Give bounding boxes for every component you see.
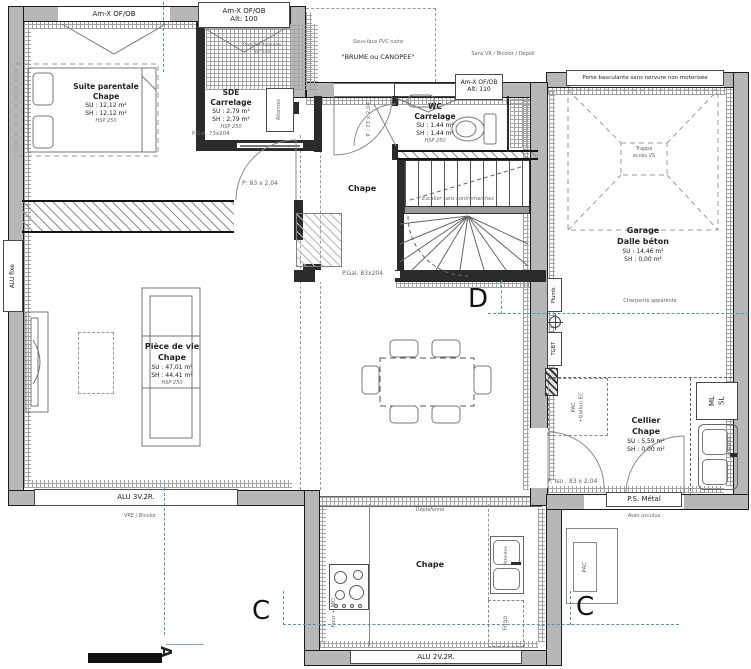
kitchen-sink: Attentes [490, 536, 524, 594]
section-line-c [283, 624, 679, 625]
room-sh: SH : 44,41 m² [122, 372, 222, 380]
window-alt-text: Alt: 100 [230, 15, 257, 23]
tv-unit-icon [26, 312, 48, 412]
sink-faucet [511, 562, 521, 565]
room-hsp: HSP 250 [406, 138, 464, 145]
room-finish: Carrelage [406, 112, 464, 122]
garage-door-label: Porte basculante sans nervure non motori… [566, 70, 724, 86]
room-label-cellier: Cellier Chape SU : 5,59 m² SH : 0,00 m² [610, 416, 682, 454]
room-name: Cellier [610, 416, 682, 427]
porch-note: Sous-face PVC noire [326, 40, 430, 46]
attentes-text: Attentes [277, 99, 283, 120]
window-label-alu-fixe: ALU fixe [3, 240, 23, 312]
scale-bar [88, 653, 162, 663]
room-name: Suite parentale [56, 82, 156, 92]
shower-label: Douche italienne 90*140 [210, 43, 314, 57]
room-su: SU : 2,79 m² [198, 108, 264, 116]
trappe-label: Trappe accès VS [621, 146, 667, 160]
sink-basin [702, 459, 728, 485]
pac-closet: PAC +ballon EC [548, 378, 608, 436]
room-su: SU : 14,46 m² [598, 248, 688, 256]
floor-plan: Sous-face PVC noire "BRUME ou CANOPEE" S… [0, 0, 751, 669]
room-finish: Chape [610, 427, 682, 438]
ml-text: ML [708, 396, 717, 406]
door-label-ps-metal: P.S. Métal [606, 492, 682, 507]
room-label-wc: WC Carrelage SU : 1,44 m² SH : 1,44 m² H… [406, 102, 464, 145]
room-name: Garage [598, 226, 688, 237]
room-sh: SH : 12,12 m² [56, 110, 156, 118]
section-marker-c: C [252, 598, 270, 624]
window-label-suite: Am-X OF/OB [58, 7, 170, 21]
room-label-suite: Suite parentale Chape SU : 12,12 m² SH :… [56, 82, 156, 125]
room-su: SU : 5,59 m² [610, 438, 682, 446]
room-label-garage: Garage Dalle béton SU : 14,46 m² SH : 0,… [598, 226, 688, 264]
vanity-knob [294, 102, 299, 114]
section-marker-d: D [468, 286, 488, 312]
pac-closet-label: PAC +ballon EC [571, 392, 586, 422]
sl-text: SL [717, 396, 726, 406]
section-line-a [164, 488, 165, 635]
sink-basin [702, 429, 728, 455]
section-line-c-tick [283, 591, 284, 625]
washer-dryer-label: ML SL [708, 396, 727, 406]
room-name: Pièce de vie [122, 342, 222, 353]
room-finish: Dalle béton [598, 237, 688, 248]
four-text: Four + MO [331, 598, 337, 627]
pac-inner: PAC [573, 542, 597, 592]
attentes-text: Attentes [504, 546, 509, 565]
wc-window-note: Sans VR / Bicolor / Dépoli [455, 52, 551, 58]
charpente-note: Charpente apparente [608, 299, 692, 305]
room-label-living: Pièce de vie Chape SU : 47,01 m² SH : 44… [122, 342, 222, 387]
room-su: SU : 12,12 m² [56, 102, 156, 110]
window-label-wc: Am-X OF/OB Alt: 110 [455, 74, 503, 100]
knob-icon [350, 604, 354, 608]
window-alt-text: Alt: 110 [467, 87, 491, 94]
room-sh: SH : 0,00 m² [598, 256, 688, 264]
kitchen-ceiling-note: Déplafonné [388, 508, 472, 514]
section-line-d-tick [501, 280, 502, 314]
pac-text: PAC [571, 392, 578, 422]
cellier-sink: Attentes [698, 424, 738, 490]
kitchen-counter-right [488, 504, 489, 600]
sde-vanity: Attentes [266, 88, 294, 132]
room-sh: SH : 2,79 m² [198, 116, 264, 124]
sink-basin [493, 568, 520, 590]
ps-door-note: Avec occulus [612, 514, 676, 520]
pac-text: PAC [582, 562, 588, 572]
section-line-a-stub [166, 644, 204, 645]
section-marker-c: C [576, 594, 594, 620]
room-su: SU : 1,44 m² [406, 122, 464, 130]
garage-door-text: Porte basculante sans nervure non motori… [582, 75, 707, 81]
door-label-text: P : 73 x 2,04 [366, 102, 372, 137]
living-window-note: VRE / Bicolor [110, 514, 170, 520]
door-label-suite: P: 83 x 2,04 [242, 181, 302, 188]
trappe-text: Trappe [621, 146, 667, 153]
section-line-vertical-top [163, 2, 164, 72]
room-su: SU : 47,01 m² [122, 364, 222, 372]
door-label-wc: P : 73 x 2,04 [366, 102, 378, 158]
room-finish: Carrelage [198, 98, 264, 108]
room-sh: SH : 1,44 m² [406, 130, 464, 138]
plumb-text: Plumb. [552, 286, 558, 303]
window-label-sde: Am-X OF/OB Alt: 100 [198, 2, 290, 28]
door-label-text: P.S. Métal [627, 495, 661, 503]
burner-icon [353, 570, 363, 580]
burner-icon [334, 571, 347, 584]
room-finish: Chape [56, 92, 156, 102]
door-label-sde: P.Gal. 73x204 [192, 131, 254, 137]
section-line-c-tick [570, 591, 571, 625]
window-label-kitchen: ALU 2V.2R. [350, 650, 522, 664]
shower-text: 90*140 [210, 50, 314, 57]
washer-dryer-box: ML SL [696, 382, 738, 420]
room-sh: SH : 0,00 m² [610, 446, 682, 454]
oven-label: Four + MO [331, 598, 347, 648]
stairs-note: Escalier sans contremarches [398, 197, 518, 203]
room-name: SDE [198, 88, 264, 98]
door-label-hall: P.Gal. 83x204 [342, 271, 400, 278]
porch-note-brume: "BRUME ou CANOPEE" [318, 54, 438, 61]
room-name: WC [406, 102, 464, 112]
room-label-sde: SDE Carrelage SU : 2,79 m² SH : 2,79 m² … [198, 88, 264, 131]
tgbt-box: TGBT [547, 332, 562, 366]
section-line-d [488, 313, 749, 314]
coffee-table [78, 332, 114, 394]
burner-icon [349, 585, 364, 600]
room-hsp: HSP 250 [56, 118, 156, 125]
room-label-hall: Chape [348, 184, 388, 193]
window-label-text: ALU fixe [10, 264, 17, 288]
window-label-text: ALU 2V.2R. [417, 653, 455, 661]
knob-icon [358, 604, 362, 608]
dining-table-icon [362, 340, 491, 423]
meter-symbol-cross [547, 322, 563, 323]
window-label-text: ALU 3V.2R. [117, 493, 155, 501]
shower-text: Douche italienne [210, 43, 314, 50]
garage-trappe-icon [568, 90, 718, 230]
room-hsp: HSP 250 [122, 380, 222, 387]
room-label-kitchen: Chape [398, 560, 462, 569]
cellier-partition [690, 378, 691, 496]
window-label-text: Am-X OF/OB [92, 10, 135, 18]
stairs-winders [400, 166, 528, 276]
window-label-text: Am-X OF/OB [222, 7, 265, 15]
attentes-text: Attentes [728, 437, 733, 456]
trappe-text: accès VS [621, 153, 667, 160]
tgbt-text: TGBT [552, 342, 558, 355]
plumbing-box: Plumb. [547, 278, 562, 312]
room-finish: Chape [122, 353, 222, 364]
room-hsp: HSP 250 [198, 124, 264, 131]
door-label-iso: P. Iso : 83 x 2,04 [548, 479, 612, 486]
window-label-living: ALU 3V.2R. [34, 489, 238, 506]
pac-text: +ballon EC [578, 392, 585, 422]
